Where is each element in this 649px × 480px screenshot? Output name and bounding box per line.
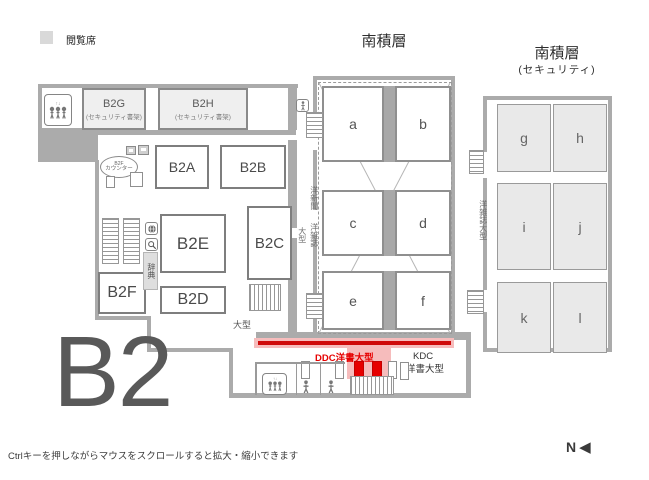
west-magazines-label: 洋雑誌: [309, 223, 318, 247]
large-books-label: 大型: [233, 318, 251, 331]
stack-pillar: [384, 190, 395, 256]
stack-cell-g-label: g: [520, 130, 528, 146]
west-newspapers-label: 洋新聞: [309, 186, 318, 210]
stack-cell-j-label: j: [578, 219, 581, 235]
stack-cell-h-label: h: [576, 130, 584, 146]
room-b2g-subtitle: (セキュリティ書架): [86, 111, 142, 121]
room-b2e-label: B2E: [177, 234, 209, 254]
right-stack-west-label: 洋雑誌大型: [478, 200, 487, 240]
stack-pillar: [384, 271, 395, 330]
stairs-icon: [123, 218, 140, 264]
compass-n-label: N: [566, 439, 576, 455]
stairs-icon: [350, 376, 394, 395]
wall-segment: [483, 312, 487, 352]
room-b2e[interactable]: B2E: [160, 214, 226, 273]
wall-segment: [608, 96, 612, 352]
wall-segment: [229, 348, 233, 398]
globe-icon: [145, 222, 158, 235]
dictionary-shelf: 辞典: [143, 252, 158, 290]
stack-cell-h[interactable]: h: [553, 104, 607, 172]
room-b2h-label: B2H: [192, 98, 213, 110]
person-icon: [301, 380, 311, 394]
stack-cell-c-label: c: [350, 215, 357, 231]
stairs-icon: [306, 293, 323, 319]
right-stack-title: 南積層: [507, 42, 607, 63]
stack-pillar: [384, 86, 395, 162]
stack-cell-a-label: a: [349, 116, 357, 132]
compass-arrow-icon: ◀: [579, 440, 591, 455]
stack-cell-c[interactable]: c: [322, 190, 384, 256]
room-b2a-label: B2A: [169, 159, 195, 175]
counter-desk-block: [106, 176, 115, 188]
wall-segment: [38, 130, 296, 135]
elevator-icon: ↑↓: [262, 373, 287, 395]
stack-cell-d[interactable]: d: [395, 190, 451, 256]
compass: N ◀: [566, 439, 591, 455]
stack-cell-f-label: f: [421, 293, 425, 309]
stack-cell-b[interactable]: b: [395, 86, 451, 162]
stack-cell-g[interactable]: g: [497, 104, 551, 172]
stack-cell-i[interactable]: i: [497, 183, 551, 270]
stack-cell-k-label: k: [521, 310, 528, 326]
wall-segment: [483, 96, 612, 100]
kdc-label-line2: 洋書大型: [406, 361, 444, 375]
stairs-icon: [249, 284, 281, 311]
wall-segment: [296, 364, 297, 395]
copier-icon: [126, 146, 136, 155]
room-b2g[interactable]: B2G (セキュリティ書架): [82, 88, 146, 130]
search-terminal-icon: [145, 238, 158, 251]
room-b2a[interactable]: B2A: [155, 145, 209, 189]
room-b2h-subtitle: (セキュリティ書架): [175, 111, 231, 121]
stairs-icon: [469, 150, 484, 174]
stack-cell-i-label: i: [522, 219, 525, 235]
floor-label: B2: [53, 322, 171, 422]
west-large-label: 大型: [297, 227, 306, 243]
stairs-icon: [306, 112, 323, 138]
person-facility-icon: [296, 99, 309, 112]
zoom-hint-text: Ctrlキーを押しながらマウスをスクロールすると拡大・縮小できます: [8, 448, 298, 462]
dictionary-shelf-label: 辞典: [146, 263, 155, 279]
stairs-icon: [102, 218, 119, 264]
stairs-icon: [467, 290, 484, 314]
room-b2c-label: B2C: [255, 235, 284, 252]
wall-segment: [466, 332, 471, 396]
floor-map-page: 閲覧席 ↑↓ B2G: [0, 0, 649, 480]
room-b2g-label: B2G: [103, 98, 125, 110]
stack-cell-l-label: l: [578, 310, 581, 326]
stack-cell-a[interactable]: a: [322, 86, 384, 162]
room-b2b-label: B2B: [240, 159, 266, 175]
ddc-highlight-line: [258, 341, 451, 345]
room-b2h[interactable]: B2H (セキュリティ書架): [158, 88, 248, 130]
stack-cell-k[interactable]: k: [497, 282, 551, 353]
stack-cell-l[interactable]: l: [553, 282, 607, 353]
person-icon: [326, 380, 336, 394]
stack-cell-j[interactable]: j: [553, 183, 607, 270]
counter-desk-block: [130, 172, 143, 187]
room-b2b[interactable]: B2B: [220, 145, 286, 189]
copier-icon: [138, 145, 149, 155]
svg-text:↑↓: ↑↓: [56, 101, 61, 107]
room-b2f[interactable]: B2F: [98, 272, 146, 314]
room-b2d-label: B2D: [177, 291, 208, 309]
shelf-slot: [400, 362, 409, 380]
stack-cell-f[interactable]: f: [395, 271, 451, 330]
right-stack-subtitle: (セキュリティ): [507, 62, 607, 77]
wall-segment: [320, 364, 321, 395]
counter-label-line2: カウンター: [105, 167, 133, 173]
room-b2d[interactable]: B2D: [160, 286, 226, 314]
svg-text:↑↓: ↑↓: [273, 376, 277, 381]
stack-cell-e[interactable]: e: [322, 271, 384, 330]
stack-cell-b-label: b: [419, 116, 427, 132]
elevator-people-icon: ↑↓: [47, 100, 69, 120]
room-b2f-label: B2F: [107, 284, 136, 302]
wall-segment: [483, 96, 487, 152]
center-stack-title: 南積層: [339, 30, 429, 51]
elevator-icon: ↑↓: [44, 94, 72, 126]
room-b2c[interactable]: B2C: [247, 206, 292, 280]
stack-cell-e-label: e: [349, 293, 357, 309]
wall-segment: [38, 84, 42, 134]
stack-cell-d-label: d: [419, 215, 427, 231]
